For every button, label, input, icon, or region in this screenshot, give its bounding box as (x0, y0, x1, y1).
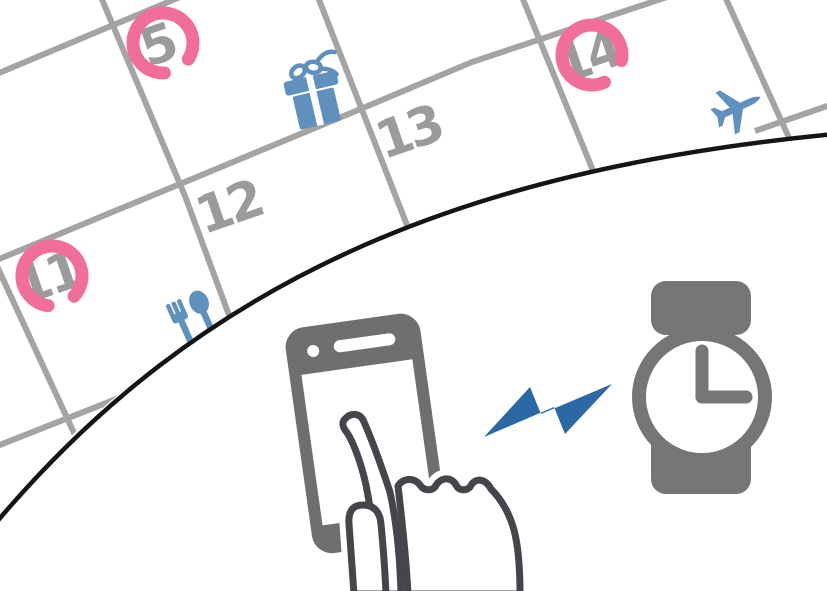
illustration-stage: 5 12 13 14 11 (0, 0, 827, 591)
grid-row-line (0, 362, 210, 448)
smartwatch-icon (639, 281, 765, 494)
watch-strap-top (651, 281, 751, 335)
lightning-bolt-icon (484, 384, 612, 437)
illustration-canvas: 5 12 13 14 11 (0, 0, 827, 591)
hand-thumb (349, 505, 386, 591)
spoon-bowl (185, 287, 212, 317)
gift-icon (279, 51, 350, 131)
grid-row-line (755, 103, 827, 131)
